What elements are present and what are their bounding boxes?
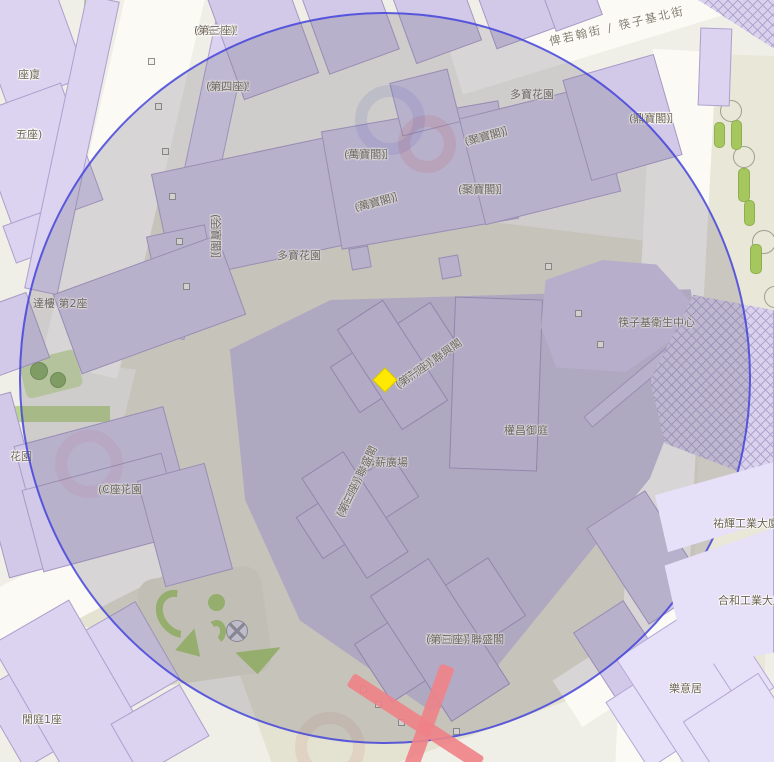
bush-icon <box>744 200 755 226</box>
utility-marker <box>148 58 155 65</box>
map-canvas[interactable]: 大廈座) 大廈五座) 宏基大廈(第三座) 宏基大廈(第四座) 多寶花園 多寶花園… <box>0 0 774 762</box>
bush-icon <box>738 168 750 202</box>
building-shape <box>698 27 733 106</box>
bush-icon <box>750 244 762 274</box>
bush-icon <box>714 122 725 148</box>
bush-icon <box>731 120 742 150</box>
